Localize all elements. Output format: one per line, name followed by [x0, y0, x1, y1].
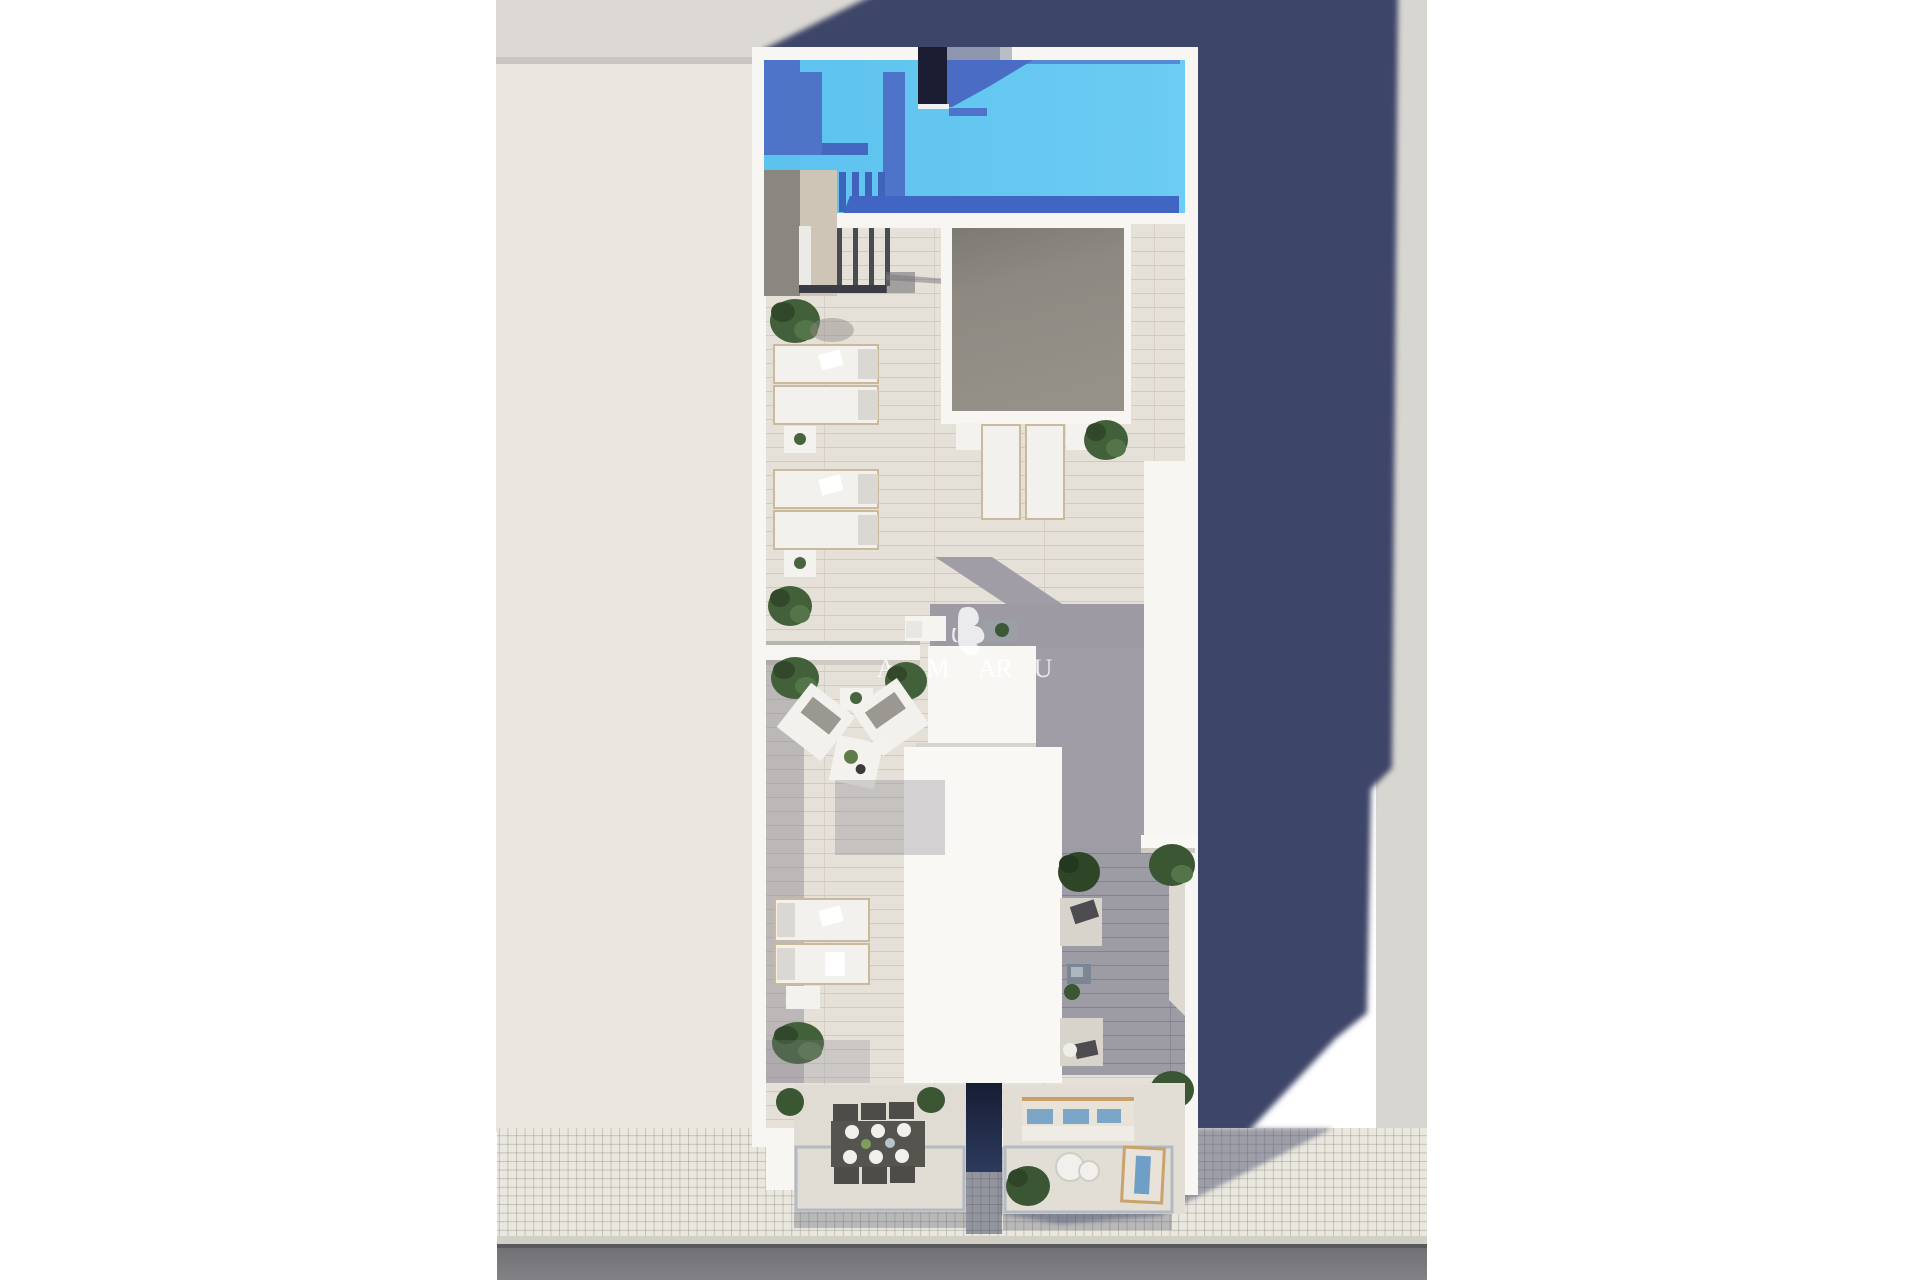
- svg-text:R: R: [995, 654, 1013, 683]
- svg-text:M: M: [926, 654, 949, 683]
- svg-text:A: A: [978, 654, 997, 683]
- svg-text:U: U: [1034, 654, 1053, 683]
